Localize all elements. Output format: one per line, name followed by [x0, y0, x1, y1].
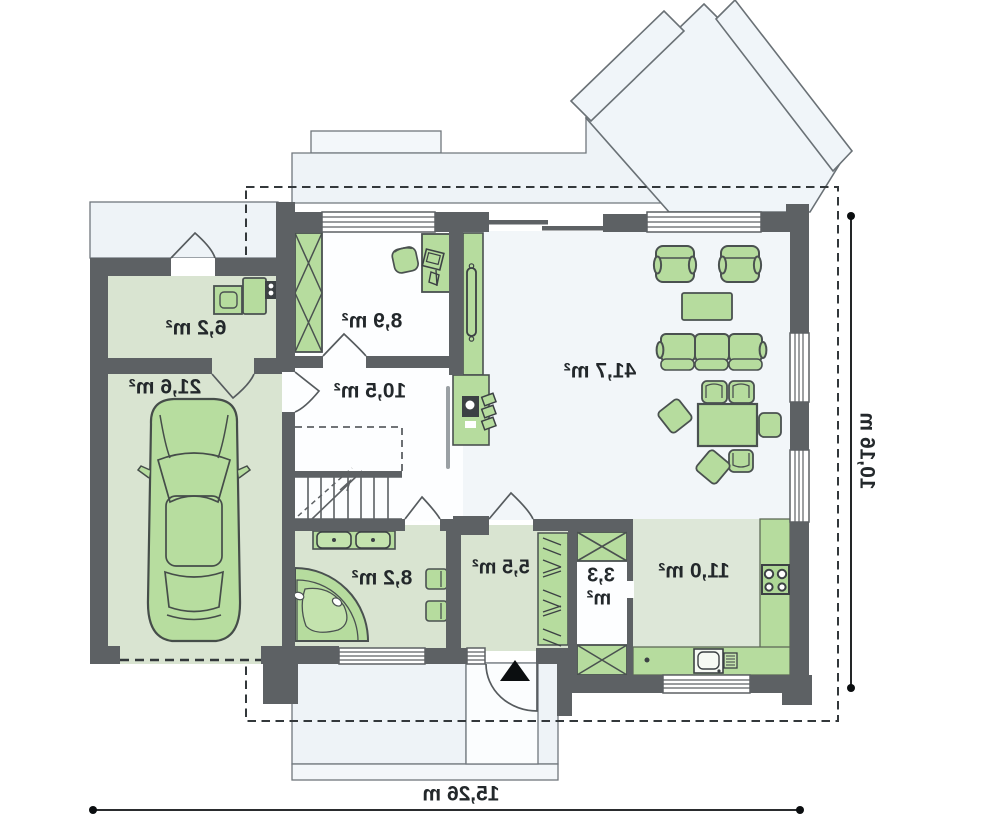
svg-text:41,7 m²: 41,7 m²: [564, 360, 636, 383]
svg-text:3,3: 3,3: [587, 564, 615, 586]
svg-text:m²: m²: [586, 587, 611, 609]
svg-text:6,2 m²: 6,2 m²: [166, 317, 227, 340]
svg-text:11,0 m²: 11,0 m²: [658, 560, 729, 583]
svg-text:10,5 m²: 10,5 m²: [334, 380, 406, 403]
svg-text:21,6 m²: 21,6 m²: [129, 376, 201, 399]
svg-text:8,9 m²: 8,9 m²: [342, 310, 403, 333]
svg-text:10,16 m: 10,16 m: [855, 412, 878, 489]
svg-text:8,2 m²: 8,2 m²: [352, 567, 413, 590]
svg-text:15,26 m: 15,26 m: [422, 783, 499, 806]
svg-text:5,5 m²: 5,5 m²: [472, 556, 530, 578]
